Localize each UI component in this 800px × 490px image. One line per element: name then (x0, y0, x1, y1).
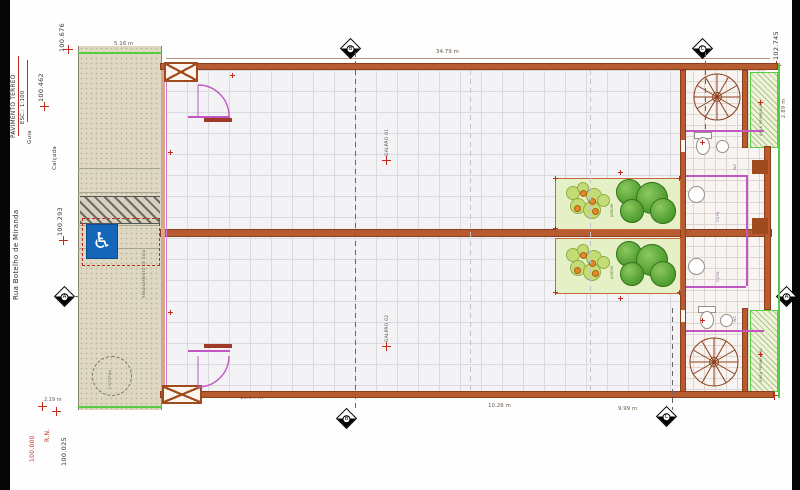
wing-door-opening (681, 140, 685, 152)
cistern-circle (92, 356, 132, 396)
wash-basin (720, 314, 733, 327)
section-line-c-bottom (672, 308, 673, 410)
spiral-stair-top (692, 72, 742, 122)
dim-bottom-middle: 10.26 m (488, 403, 511, 409)
wall-left (161, 70, 165, 391)
scan-border-right (792, 0, 800, 490)
wing-door-opening (681, 310, 685, 322)
scale-underline (27, 60, 28, 122)
level-marker-icon (382, 342, 391, 351)
pillar-top-left (164, 62, 198, 82)
property-line-top (78, 52, 162, 54)
level-marker-icon (59, 236, 68, 245)
section-letter: A (61, 293, 69, 301)
level-marker-icon (52, 407, 61, 416)
red-tick-icon (677, 290, 682, 295)
shrub (597, 256, 610, 269)
wall-right-lower (742, 308, 748, 392)
level-marker-icon (382, 156, 391, 165)
shrub (597, 194, 610, 207)
wash-basin (688, 186, 705, 203)
red-tick-icon (758, 100, 763, 105)
room-label-wc-top: WC (733, 146, 737, 170)
section-marker-c-top: C (692, 38, 713, 59)
unit2-label: GALPÃO 02 (385, 304, 390, 342)
page-title: PAVIMENTO TÉRREO (11, 54, 17, 138)
red-tick-icon (553, 176, 558, 181)
section-letter: A (783, 293, 791, 301)
red-tick-icon (168, 150, 173, 155)
partition-corridor (746, 175, 748, 286)
section-letter: B (347, 45, 355, 53)
level-marker-icon (38, 402, 47, 411)
dim-top-main: 34.79 m (436, 49, 459, 55)
level-label-sidewalk-upper: 100.462 (37, 56, 45, 102)
permeable-label-top: ÁREA PERMEÁVEL (759, 84, 763, 136)
scan-border-left (0, 0, 10, 490)
red-tick-icon (168, 310, 173, 315)
tree (650, 261, 676, 287)
dim-line-top (166, 58, 770, 59)
door-arc-top-left (196, 84, 230, 118)
title-underline (18, 56, 19, 136)
red-tick-icon (758, 352, 763, 357)
property-line-right (778, 63, 780, 398)
cistern-label: CISTERNA (108, 362, 112, 389)
sidewalk-label: Calçada (52, 126, 58, 170)
section-line-c-top (705, 52, 706, 130)
section-letter: C (663, 413, 671, 421)
red-tick-icon (677, 176, 682, 181)
partition-wc-bottom (686, 286, 746, 288)
flower (580, 252, 587, 259)
construction-line (470, 70, 471, 392)
level-marker-icon (64, 45, 73, 54)
section-line-b (355, 52, 356, 412)
door-threshold-bottom (188, 350, 230, 352)
section-letter: B (343, 415, 351, 423)
glass-line-left (166, 70, 167, 391)
spiral-stair-bottom (688, 336, 740, 388)
wash-basin (688, 258, 705, 275)
level-label-sidewalk-mid: 100.293 (56, 192, 64, 236)
door-leaf-bottom (204, 344, 232, 348)
wall-wing-partition (680, 70, 686, 392)
red-tick-icon (700, 318, 705, 323)
wall-bottom (160, 391, 774, 398)
red-tick-icon (230, 73, 235, 78)
tree (620, 262, 644, 286)
door-arc-bottom-left (196, 354, 230, 388)
tree (620, 199, 644, 223)
flower (574, 267, 581, 274)
wash-basin (716, 140, 729, 153)
accessibility-sign: ♿ (86, 224, 118, 259)
partition-wc-top (686, 175, 746, 177)
flower (592, 208, 599, 215)
section-marker-b-top: B (340, 38, 361, 59)
level-marker-icon (40, 102, 49, 111)
wall-right-upper (742, 70, 748, 148)
room-label-copa-bottom: COPA (716, 254, 720, 282)
permeable-area-top (750, 72, 778, 148)
red-tick-icon (553, 226, 558, 231)
unit1-label: GALPÃO 01 (385, 118, 390, 156)
wall-top (160, 63, 778, 70)
dim-bottom-right: 9.99 m (618, 406, 637, 412)
door-leaf-top (204, 118, 232, 122)
room-label-copa-top: COPA (716, 194, 720, 222)
dim-right-top: 2.89 m (781, 82, 787, 118)
sidewalk-joint (78, 168, 160, 169)
section-marker-a-left: A (54, 286, 75, 307)
page-scale: ESC.: 1:100 (20, 60, 26, 124)
tree (650, 198, 676, 224)
garden-label-top: JARDIM (610, 190, 614, 217)
construction-line (590, 70, 591, 392)
street-name-label: Rua Botelho de Miranda (12, 168, 20, 300)
permeable-area-bottom (750, 310, 778, 392)
benchmark-value: 100.000 (29, 412, 36, 462)
red-tick-icon (618, 170, 623, 175)
flower (580, 190, 587, 197)
property-line-bottom (78, 406, 162, 408)
benchmark-label: R.N. (44, 420, 51, 442)
red-tick-icon (700, 140, 705, 145)
garden-label-bottom: JARDIM (610, 252, 614, 279)
partition-stair-bottom (686, 330, 764, 332)
section-marker-b-bottom: B (336, 408, 357, 429)
red-tick-icon (553, 290, 558, 295)
room-label-wc-bottom: WC (733, 298, 737, 322)
curb-label: Guia (27, 114, 33, 144)
level-label-sidewalk-bottom: 100.025 (60, 416, 68, 466)
flower (574, 205, 581, 212)
level-label-upper-top: 102.745 (772, 6, 780, 60)
red-tick-icon (618, 296, 623, 301)
pillar-right-2 (752, 218, 768, 234)
sidewalk-joint (78, 192, 160, 193)
section-marker-c-bottom: C (656, 406, 677, 427)
flower (592, 270, 599, 277)
pillar-right-1 (752, 160, 768, 174)
floor-plan-sheet: 100.676 PAVIMENTO TÉRREO ESC.: 1:100 100… (0, 0, 800, 490)
wheelchair-icon: ♿ (92, 231, 112, 253)
